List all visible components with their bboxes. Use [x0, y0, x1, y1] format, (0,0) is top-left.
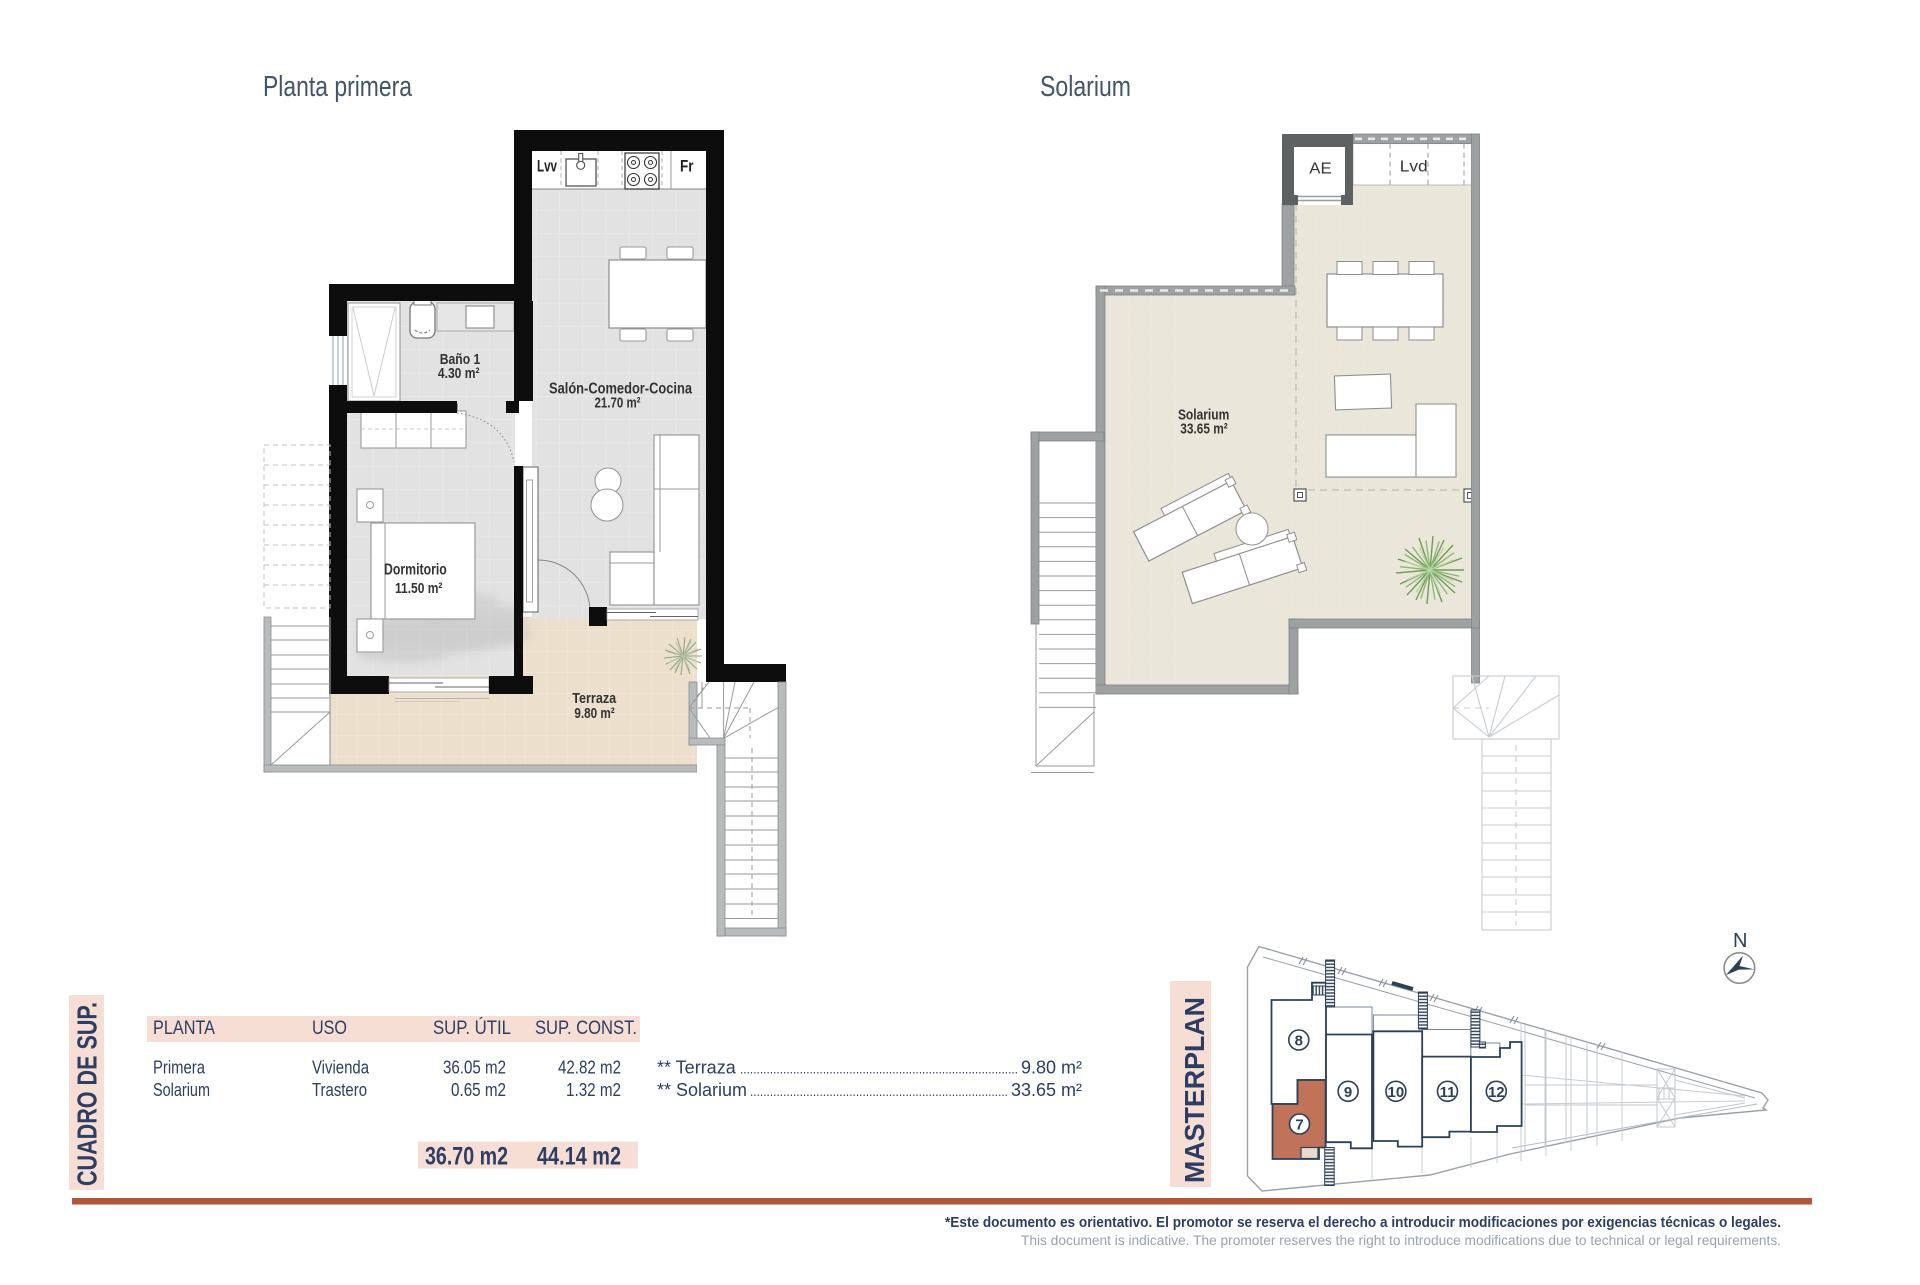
svg-text:Vivienda: Vivienda: [312, 1058, 370, 1078]
svg-text:Lvv: Lvv: [537, 158, 558, 176]
svg-text:N: N: [1733, 930, 1747, 952]
svg-text:11.50 m²: 11.50 m²: [395, 580, 442, 597]
svg-text:Trastero: Trastero: [312, 1080, 367, 1100]
svg-text:AE: AE: [1309, 160, 1331, 177]
svg-text:10: 10: [1388, 1084, 1405, 1101]
svg-text:** Terraza: ** Terraza: [657, 1058, 737, 1078]
svg-text:33.65 m²: 33.65 m²: [1011, 1080, 1082, 1100]
svg-text:9.80 m²: 9.80 m²: [574, 705, 614, 722]
svg-text:4.30 m²: 4.30 m²: [438, 365, 480, 382]
svg-text:42.82 m2: 42.82 m2: [558, 1058, 621, 1078]
svg-text:Lvd: Lvd: [1400, 159, 1428, 176]
svg-text:Planta primera: Planta primera: [263, 71, 413, 103]
svg-text:44.14 m2: 44.14 m2: [537, 1143, 621, 1171]
svg-text:PLANTA: PLANTA: [153, 1018, 215, 1039]
svg-text:..............................: ........................................…: [750, 1083, 1008, 1099]
svg-text:21.70 m²: 21.70 m²: [595, 395, 641, 412]
svg-text:SUP. ÚTIL: SUP. ÚTIL: [433, 1017, 511, 1039]
svg-text:..............................: ........................................…: [740, 1061, 1018, 1077]
svg-text:*Este documento es orientativo: *Este documento es orientativo. El promo…: [945, 1214, 1781, 1231]
svg-text:Dormitorio: Dormitorio: [384, 561, 447, 578]
svg-text:7: 7: [1295, 1117, 1303, 1134]
svg-text:36.70 m2: 36.70 m2: [425, 1143, 508, 1171]
svg-text:Solarium: Solarium: [153, 1080, 210, 1100]
svg-text:This document is indicative. T: This document is indicative. The promote…: [1021, 1233, 1781, 1248]
svg-text:11: 11: [1440, 1084, 1456, 1101]
svg-text:9: 9: [1344, 1084, 1352, 1101]
svg-text:USO: USO: [312, 1018, 347, 1039]
svg-text:Fr: Fr: [680, 158, 694, 176]
svg-text:12: 12: [1488, 1084, 1505, 1101]
svg-text:8: 8: [1295, 1033, 1303, 1050]
svg-text:9.80 m²: 9.80 m²: [1021, 1058, 1082, 1078]
svg-text:36.05 m2: 36.05 m2: [443, 1058, 506, 1078]
svg-text:0.65 m2: 0.65 m2: [451, 1080, 506, 1100]
svg-text:MASTERPLAN: MASTERPLAN: [1179, 997, 1210, 1183]
svg-text:1.32 m2: 1.32 m2: [566, 1080, 621, 1100]
svg-text:** Solarium: ** Solarium: [657, 1080, 747, 1100]
svg-text:33.65 m²: 33.65 m²: [1180, 421, 1227, 438]
svg-text:SUP. CONST.: SUP. CONST.: [535, 1018, 637, 1039]
svg-text:Primera: Primera: [153, 1058, 206, 1078]
svg-text:CUADRO DE SUP.: CUADRO DE SUP.: [72, 1002, 103, 1186]
svg-text:Solarium: Solarium: [1040, 71, 1131, 103]
